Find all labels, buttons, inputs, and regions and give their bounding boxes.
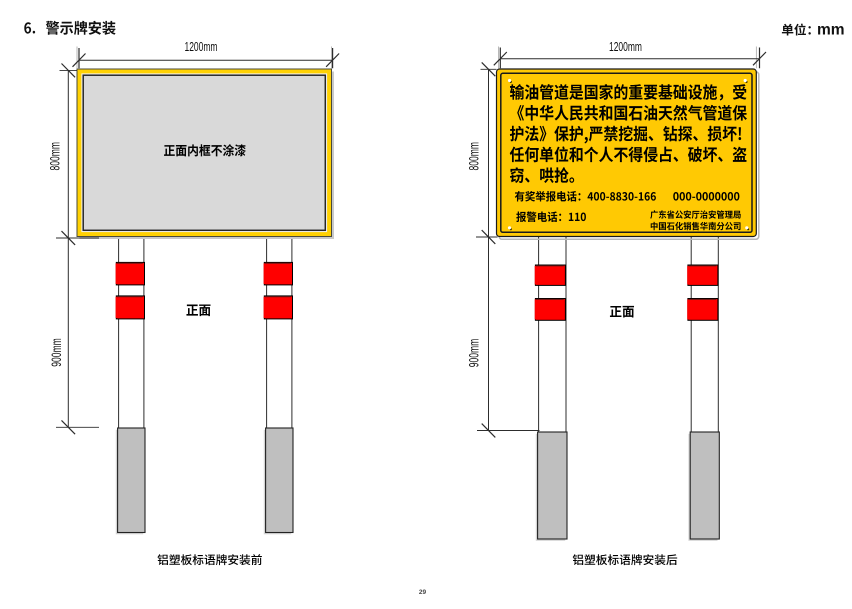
svg-text:29: 29 <box>419 589 427 596</box>
svg-text:1200mm: 1200mm <box>185 39 218 54</box>
svg-text:900mm: 900mm <box>49 338 64 367</box>
svg-text:800mm: 800mm <box>48 142 63 171</box>
svg-text:800mm: 800mm <box>467 142 482 171</box>
svg-text:mm: mm <box>817 22 845 39</box>
svg-text:900mm: 900mm <box>467 339 482 368</box>
svg-text:1200mm: 1200mm <box>609 39 642 54</box>
